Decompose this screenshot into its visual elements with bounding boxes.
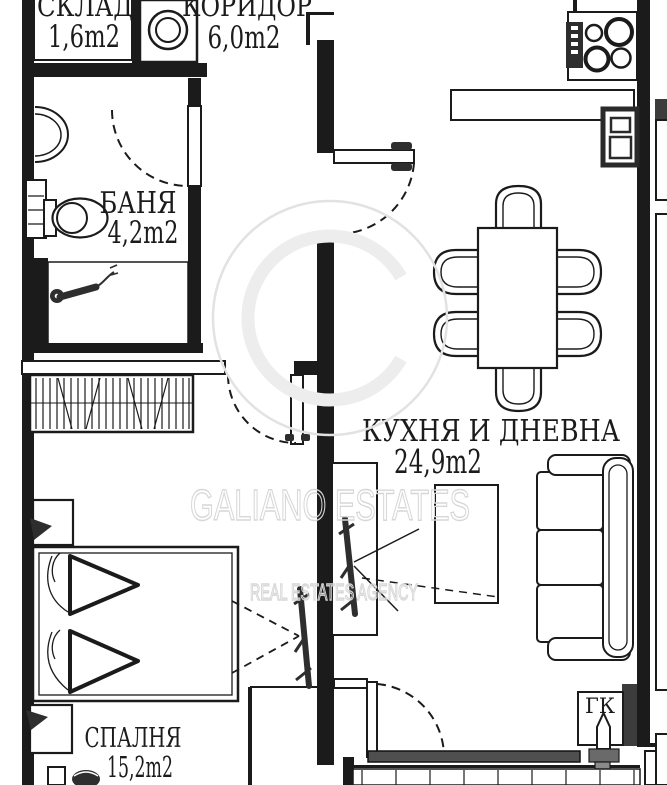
sliver-dark-block [655, 99, 667, 120]
sliver-box-1 [656, 120, 667, 200]
wall-bedroom-north-cap [294, 361, 334, 375]
fridge-icon [603, 109, 637, 165]
wardrobe [30, 375, 193, 432]
kitchen-door-leaf [334, 150, 414, 163]
sliver-box-2 [656, 214, 667, 690]
shaft-dark-block [622, 684, 637, 746]
floor-plan: СКЛАД 1,6m2 КОРИДОР 6,0m2 БАНЯ 4,2m2 КУХ… [0, 0, 667, 785]
bedroom-area: 15,2m2 [107, 750, 173, 784]
sofa [537, 455, 633, 660]
bedroom-door-handle-a [285, 434, 294, 441]
storage-area: 1,6m2 [48, 19, 120, 55]
kitchen-door-handle-a [391, 142, 412, 150]
sofa-cushion-2 [537, 530, 603, 585]
watermark-brand: GALIANO ESTATES [190, 481, 470, 530]
sofa-backrest [603, 458, 633, 657]
wall-under-storage [22, 63, 207, 77]
nightstand-bottom [30, 705, 72, 753]
utility-shaft-label: ГК [585, 694, 615, 718]
kitchen-door-handle-b [391, 163, 412, 171]
balcony-door-leaf [367, 682, 377, 757]
balcony [353, 769, 640, 785]
dresser-small [48, 767, 65, 785]
kitchen-living-area: 24,9m2 [394, 442, 482, 481]
dining-table [478, 228, 557, 368]
wall-bedroom-east-lower [248, 687, 252, 785]
wall-left-thick-shower [22, 258, 48, 350]
wall-bath-right-upper [188, 78, 201, 108]
wall-divider-mid [317, 235, 334, 362]
bathroom-door-leaf [188, 106, 201, 186]
watermark-tagline: REAL ESTATES AGENCY [250, 579, 418, 605]
floor-plan-svg: СКЛАД 1,6m2 КОРИДОР 6,0m2 БАНЯ 4,2m2 КУХ… [0, 0, 667, 785]
wall-bath-right-lower [188, 184, 201, 346]
wall-living-south-band [334, 679, 367, 688]
wall-divider-upper [317, 40, 334, 153]
sliver-box-3 [656, 734, 667, 785]
wall-bedroom-north-band [22, 361, 225, 374]
sofa-cushion-1 [537, 472, 603, 530]
bedroom-door-handle-b [301, 434, 310, 441]
sofa-cushion-3 [537, 585, 603, 642]
bed [33, 547, 238, 701]
bathroom-area: 4,2m2 [108, 215, 179, 251]
corridor-area: 6,0m2 [208, 20, 281, 56]
riser-base [589, 749, 619, 762]
balcony-window-band [368, 751, 580, 762]
